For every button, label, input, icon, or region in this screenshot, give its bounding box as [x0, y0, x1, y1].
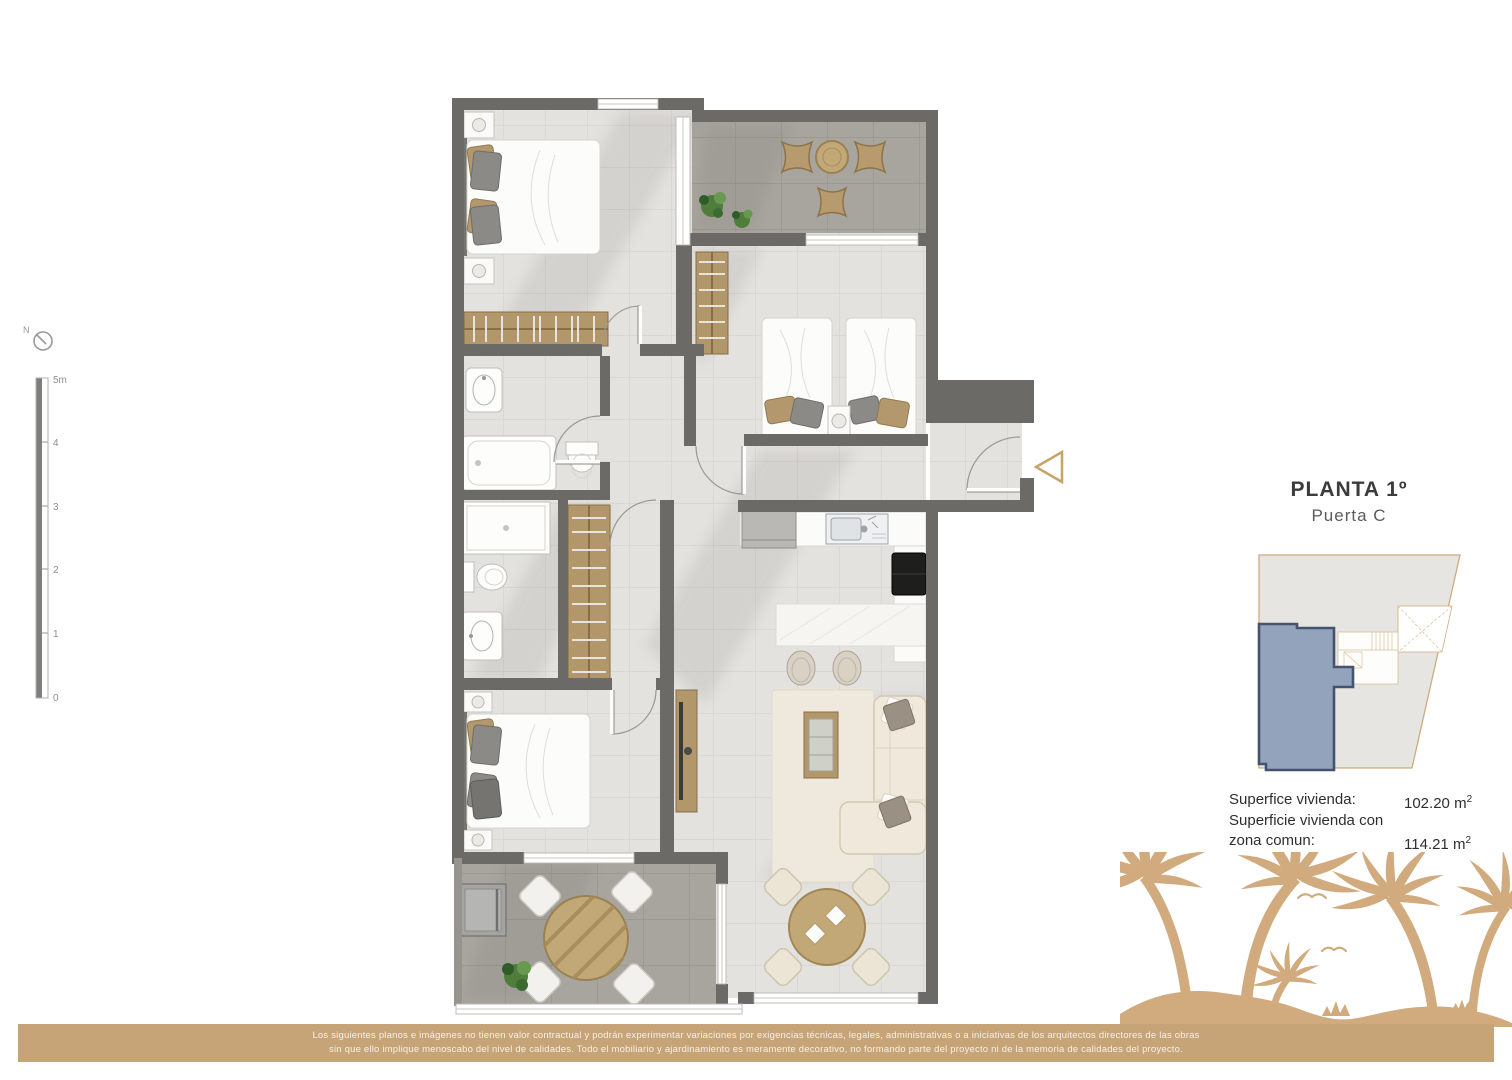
page-subtitle: Puerta C: [1229, 506, 1469, 526]
area-label: Superficie vivienda con: [1229, 812, 1383, 829]
site-key-plan: [1248, 548, 1470, 778]
scale-label-1: 1: [53, 629, 59, 640]
wardrobe-corridor: [568, 505, 610, 687]
scale-bar: 5m 4 3 2 1 0: [36, 375, 67, 704]
fridge: [742, 508, 796, 548]
title-block: PLANTA 1º Puerta C: [1229, 478, 1469, 526]
kitchen-sink: [826, 514, 888, 544]
page-title: PLANTA 1º: [1229, 478, 1469, 502]
wardrobe-bedroom-2: [696, 252, 728, 354]
twin-bed-right: [846, 318, 916, 438]
compass-label: N: [23, 325, 30, 335]
area-row-2-line-2: zona comun: 114.21 m2: [1229, 831, 1489, 852]
disclaimer-line-2: sin que ello implique menoscabo del nive…: [18, 1043, 1494, 1057]
storage-unit: [460, 884, 506, 936]
entrance-arrow-icon: [1036, 452, 1062, 482]
bedroom-3: [462, 692, 590, 850]
area-row-2-line-1: Superficie vivienda con: [1229, 811, 1489, 832]
toilet: [462, 562, 507, 592]
tv-unit: [676, 690, 697, 812]
scale-label-0: 0: [53, 693, 59, 704]
footer-disclaimer: Los siguientes planos e imágenes no tien…: [18, 1024, 1494, 1062]
terrace-round-table: [816, 141, 848, 173]
area-label: Superfice vivienda:: [1229, 791, 1356, 808]
coffee-table: [804, 712, 838, 778]
palm-silhouette: [1120, 852, 1512, 1027]
twin-bed-left: [762, 318, 832, 438]
scale-label-5m: 5m: [53, 375, 67, 386]
sink: [462, 612, 502, 660]
area-label: zona comun:: [1229, 832, 1315, 849]
disclaimer-line-1: Los siguientes planos e imágenes no tien…: [18, 1029, 1494, 1043]
surface-areas: Superfice vivienda: 102.20 m2 Superficie…: [1229, 790, 1489, 852]
site-patio: [1398, 606, 1452, 652]
wardrobe-bedroom-1: [464, 312, 608, 346]
scale-label-2: 2: [53, 565, 59, 576]
compass-icon: N: [23, 325, 52, 350]
dining-table: [789, 889, 865, 965]
floor-plan: [440, 88, 1080, 1028]
palm-beach-illustration: [1120, 852, 1512, 1027]
scale-label-4: 4: [53, 438, 59, 449]
area-row-1: Superfice vivienda: 102.20 m2: [1229, 790, 1489, 811]
map-tools: N 5m 4 3 2 1 0: [18, 318, 92, 710]
birds-icon: [1298, 894, 1392, 951]
scale-label-3: 3: [53, 502, 59, 513]
